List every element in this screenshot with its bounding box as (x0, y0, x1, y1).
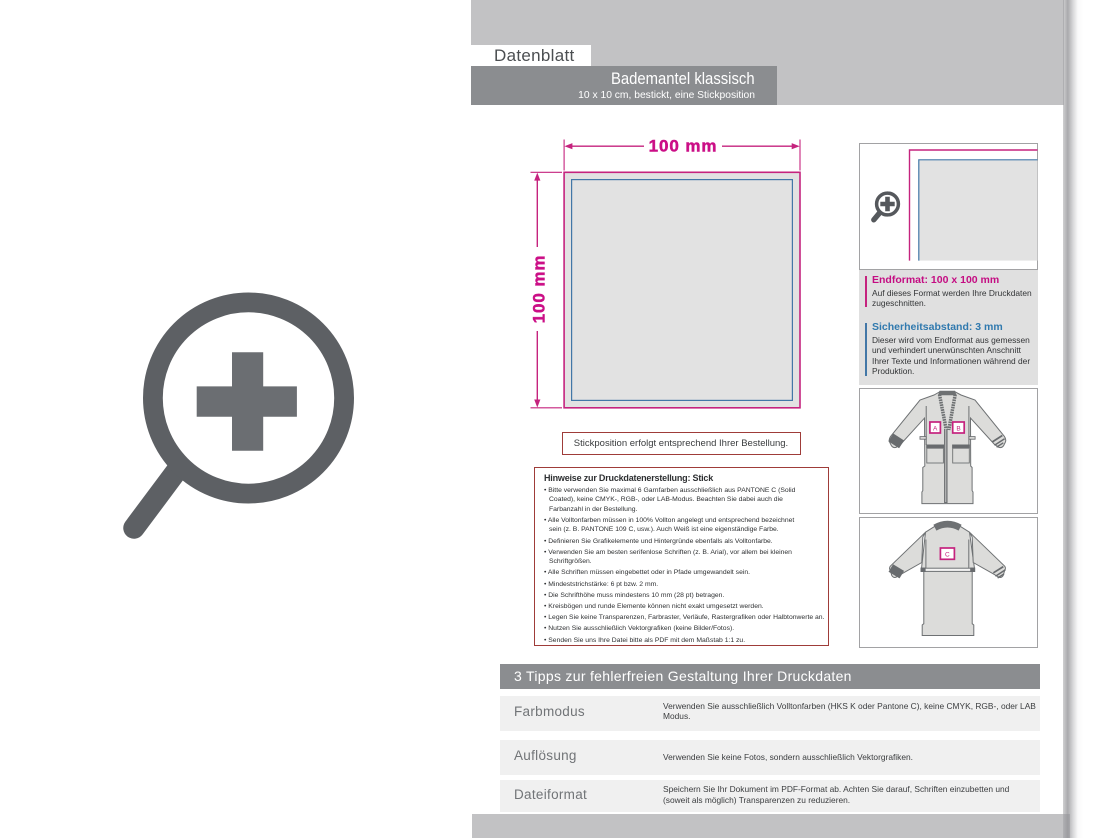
svg-text:A: A (933, 425, 938, 432)
svg-text:100 mm: 100 mm (529, 255, 548, 324)
svg-text:100 mm: 100 mm (649, 137, 718, 156)
svg-text:C: C (945, 552, 950, 559)
svg-text:B: B (956, 425, 960, 432)
